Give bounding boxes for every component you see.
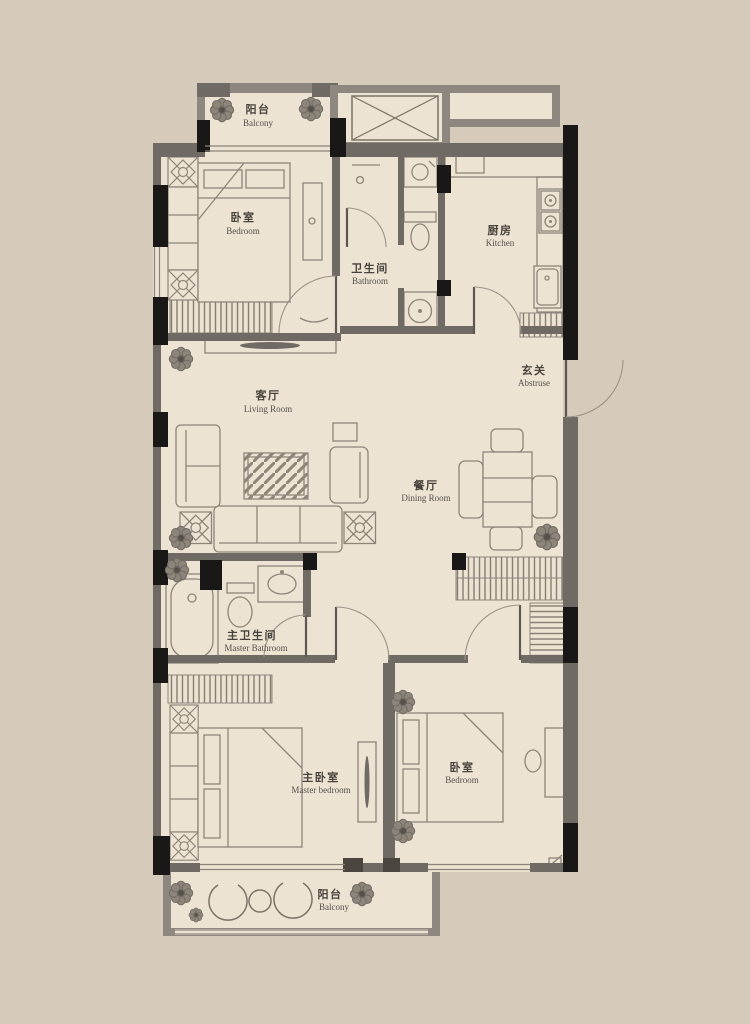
svg-text:Balcony: Balcony (319, 902, 349, 912)
side-table (344, 512, 376, 544)
dining-table (483, 452, 532, 527)
vanity (404, 157, 437, 187)
wardrobe-end-table (168, 270, 198, 300)
dining-room-label: 餐厅 (413, 478, 439, 492)
coffee-table (244, 453, 308, 499)
svg-text:Bathroom: Bathroom (352, 276, 388, 286)
wardrobe-drawers (168, 187, 198, 270)
flower-icon (391, 819, 414, 842)
toilet-tank (404, 212, 436, 222)
toilet-bowl (411, 224, 429, 250)
bedroom-top-label: 卧室 (231, 210, 256, 224)
svg-text:Bedroom: Bedroom (445, 775, 479, 785)
svg-text:Living Room: Living Room (244, 404, 292, 414)
bedroom-right-label: 卧室 (450, 760, 475, 774)
dining-chair (532, 476, 557, 518)
hall-cabinet (530, 603, 565, 663)
flower-icon (350, 882, 373, 905)
master-bedroom-label: 主卧室 (302, 770, 340, 784)
svg-text:Master bedroom: Master bedroom (291, 785, 350, 795)
end-table (333, 423, 357, 441)
flower-icon (169, 881, 192, 904)
entrance-label: 玄关 (522, 363, 547, 377)
living-room-label: 客厅 (255, 388, 281, 402)
balcony-top-label: 阳台 (246, 102, 271, 116)
armchair (330, 447, 368, 503)
tv-icon (365, 756, 370, 808)
dining-chair (459, 461, 483, 518)
svg-text:Bedroom: Bedroom (226, 226, 260, 236)
flower-icon (169, 347, 192, 370)
gear-icon (189, 908, 203, 922)
flower-icon (165, 558, 188, 581)
toilet-tank (227, 583, 254, 593)
master-bathroom-label: 主卫生间 (227, 628, 277, 642)
flower-icon (534, 524, 560, 550)
flower-icon (391, 690, 414, 713)
wardrobe-drawers (170, 733, 198, 832)
kitchen-label: 厨房 (488, 223, 513, 237)
balcony-bottom-label: 阳台 (318, 887, 343, 901)
dining-chair (490, 527, 522, 550)
bed (198, 728, 302, 847)
bathroom-label: 卫生间 (351, 261, 389, 275)
flower-icon (169, 526, 192, 549)
master-bedroom-closet (168, 675, 272, 703)
svg-text:Kitchen: Kitchen (486, 238, 515, 248)
flower-icon (210, 98, 233, 121)
dining-chair (491, 429, 523, 452)
tv-icon (240, 342, 300, 349)
svg-text:Dining Room: Dining Room (401, 493, 450, 503)
floor-plan: 阳台 Balcony 卧室 Bedroom 卫生间 Bathroom 厨房 Ki… (0, 0, 750, 1024)
wardrobe-end-table (170, 832, 198, 860)
wardrobe-end-table (170, 705, 198, 733)
svg-text:Master Bathroom: Master Bathroom (224, 643, 287, 653)
sofa-main (214, 506, 342, 552)
fridge (534, 266, 561, 308)
svg-text:Abstruse: Abstruse (518, 378, 550, 388)
svg-text:Balcony: Balcony (243, 118, 273, 128)
toilet-bowl (228, 597, 252, 627)
wardrobe-end-table (168, 157, 198, 187)
floor-plan-page: 阳台 Balcony 卧室 Bedroom 卫生间 Bathroom 厨房 Ki… (0, 0, 750, 1024)
flower-icon (299, 97, 322, 120)
nightstand (303, 183, 322, 260)
